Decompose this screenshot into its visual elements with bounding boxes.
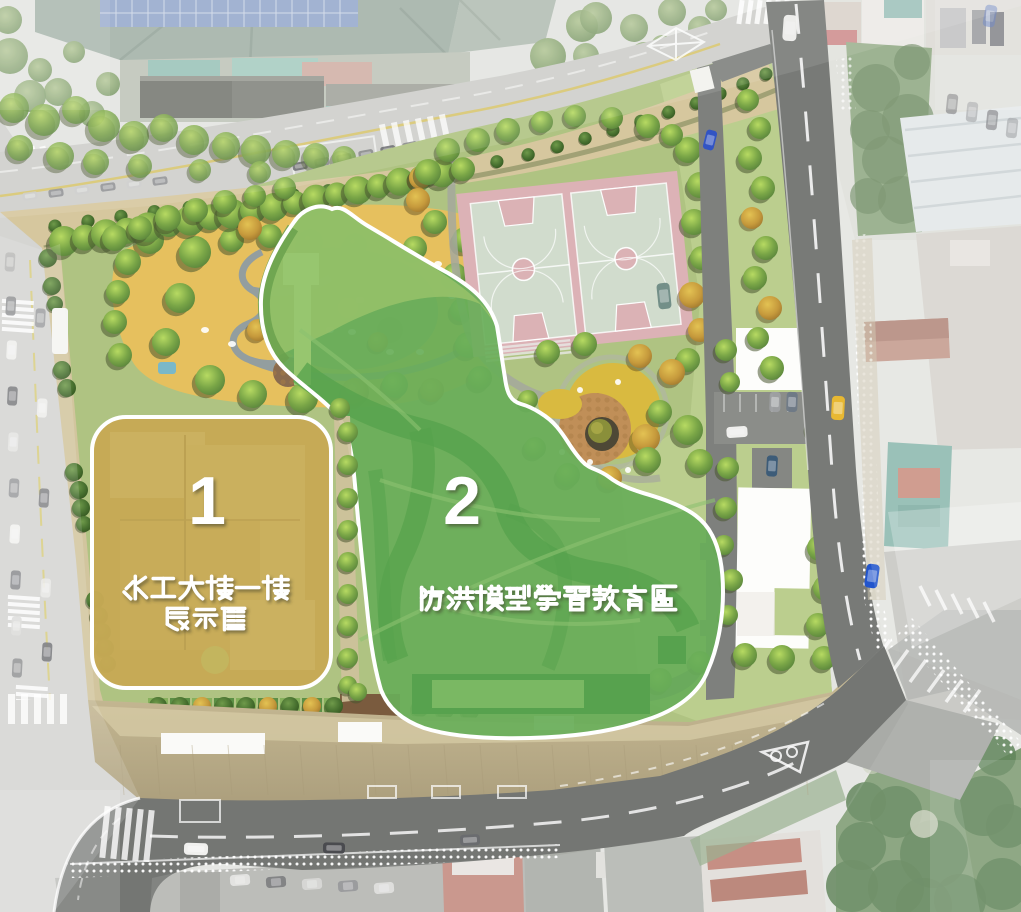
svg-text:1: 1	[188, 463, 226, 539]
svg-text:2: 2	[443, 463, 481, 539]
